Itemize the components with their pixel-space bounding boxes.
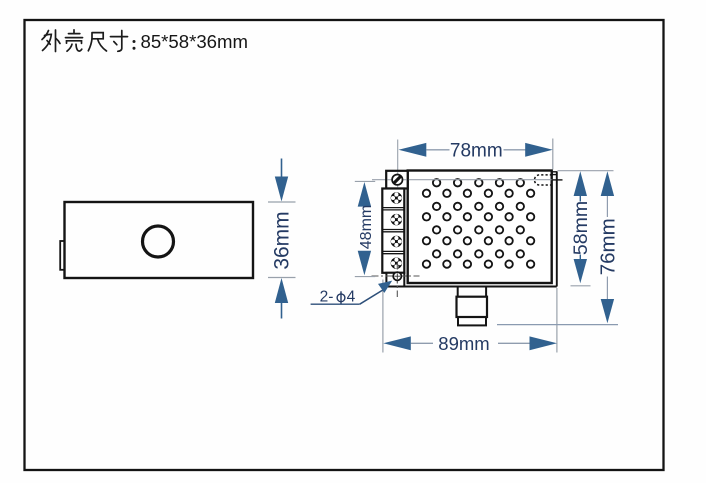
svg-text:78mm: 78mm: [450, 141, 503, 162]
svg-text:4: 4: [347, 289, 356, 306]
svg-text:76mm: 76mm: [596, 218, 619, 275]
svg-text:58mm: 58mm: [570, 201, 592, 255]
svg-text:48mm: 48mm: [358, 205, 375, 249]
svg-text:36mm: 36mm: [271, 211, 294, 269]
svg-text:2-: 2-: [320, 289, 334, 306]
svg-text:85*58*36mm: 85*58*36mm: [141, 31, 249, 52]
svg-text:89mm: 89mm: [438, 333, 489, 354]
